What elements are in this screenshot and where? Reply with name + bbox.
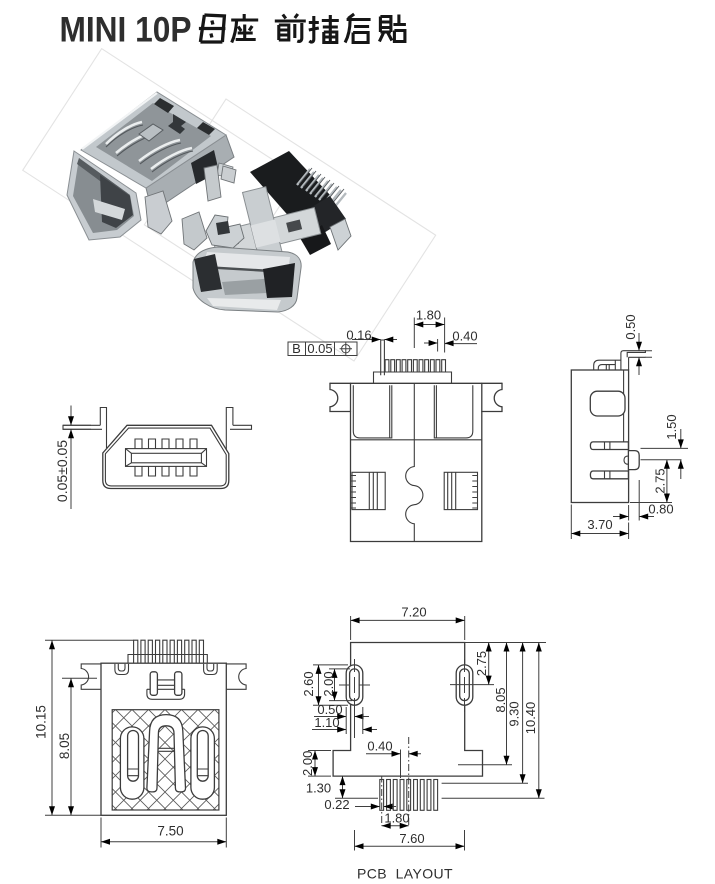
svg-text:7.20: 7.20 — [401, 605, 426, 620]
svg-text:9.30: 9.30 — [507, 701, 522, 726]
svg-text:1.80: 1.80 — [416, 308, 441, 323]
svg-text:2.00: 2.00 — [300, 751, 315, 776]
svg-text:0.50: 0.50 — [623, 314, 638, 339]
svg-text:2.00: 2.00 — [321, 671, 336, 696]
svg-text:0.16: 0.16 — [346, 328, 371, 343]
svg-text:3.70: 3.70 — [587, 517, 612, 532]
svg-text:1.30: 1.30 — [306, 781, 331, 796]
svg-text:7.60: 7.60 — [399, 831, 424, 846]
svg-text:10.15: 10.15 — [34, 705, 49, 739]
svg-text:8.05: 8.05 — [57, 733, 72, 759]
svg-text:10.40: 10.40 — [523, 702, 538, 735]
svg-text:0.80: 0.80 — [648, 502, 673, 517]
svg-text:0.22: 0.22 — [324, 797, 349, 812]
svg-text:0.40: 0.40 — [452, 329, 477, 344]
svg-text:1.50: 1.50 — [664, 414, 679, 439]
svg-text:0.40: 0.40 — [367, 739, 392, 754]
svg-text:1.10: 1.10 — [314, 715, 339, 730]
svg-text:2.75: 2.75 — [474, 651, 489, 676]
svg-text:0.05: 0.05 — [307, 341, 332, 356]
svg-text:2.60: 2.60 — [301, 671, 316, 696]
svg-text:PCB LAYOUT: PCB LAYOUT — [357, 866, 453, 882]
svg-text:2.75: 2.75 — [653, 468, 668, 493]
svg-text:0.05±0.05: 0.05±0.05 — [54, 440, 70, 502]
svg-text:MINI 10P: MINI 10P — [60, 11, 192, 50]
svg-text:B: B — [292, 341, 301, 356]
svg-text:1.80: 1.80 — [384, 811, 409, 826]
svg-text:7.50: 7.50 — [157, 824, 183, 839]
